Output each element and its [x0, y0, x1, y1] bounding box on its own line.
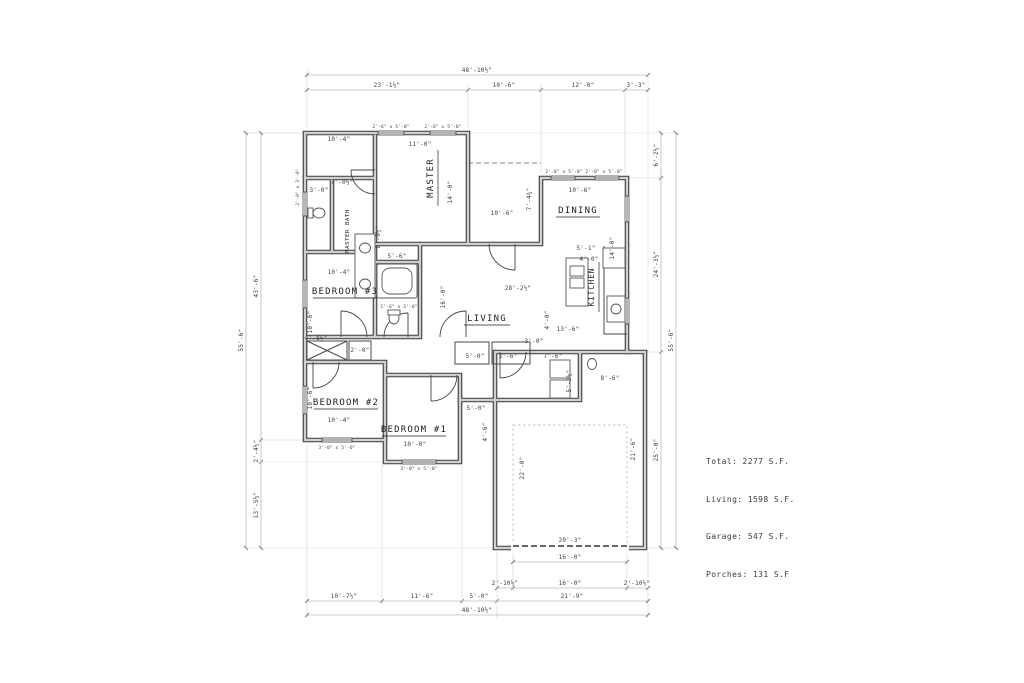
dim-closet1: 4'-8½": [305, 335, 328, 342]
dim-top-seg3: 12'-0": [572, 82, 595, 89]
dim-bed2-height: 10'-6": [307, 387, 314, 410]
dim-bed3-height: 10'-6": [307, 311, 314, 334]
dim-left-seg2: 2'-4½": [253, 440, 260, 463]
dim-bottom-overall: 48'-10½": [462, 607, 493, 614]
dim-patio2: 4'-6": [482, 422, 489, 441]
dim-left-overall: 55'-6": [238, 329, 245, 352]
dim-left-seg3: 13'-5½": [253, 492, 260, 519]
floor-plan-page: MASTER MASTER BATH DINING KITCHEN LIVING…: [0, 0, 1024, 683]
dim-garage-width: 20'-3": [559, 537, 582, 544]
dim-bottom-seg2: 11'-6": [411, 593, 434, 600]
dim-porch-height: 7'-4¾": [526, 188, 533, 211]
dim-hall1: 5'-0": [465, 353, 484, 360]
window-label-master1: 2'-6" x 5'-0": [372, 124, 409, 130]
window-label-dining: 2'-0" x 5'-0" 2'-0" x 5'-0": [545, 169, 622, 175]
extension-lines: [243, 70, 679, 618]
dim-master-closet: 10'-4": [328, 136, 351, 143]
dim-living-width: 28'-2½": [505, 285, 532, 292]
dim-dining-width: 10'-6": [569, 187, 592, 194]
room-label-bedroom1: BEDROOM #1: [381, 425, 447, 435]
dim-top-seg4: 3'-3": [626, 82, 645, 89]
window-label-bath2: 1'-6" x 3'-0": [380, 304, 417, 310]
summary-total: Total: 2277 S.F.: [706, 456, 795, 469]
window-label-bed2: 3'-0" x 5'-0": [318, 445, 355, 451]
room-label-bedroom3: BEDROOM #3: [312, 287, 378, 297]
room-label-master: MASTER: [426, 158, 436, 198]
dim-bottom-seg3: 5'-0": [469, 593, 488, 600]
garage-door: [511, 543, 629, 553]
area-summary: Total: 2277 S.F. Living: 1598 S.F. Garag…: [706, 431, 795, 594]
dim-utility2: 5'-2½": [566, 370, 573, 393]
dim-right-seg2: 24'-3½": [653, 251, 660, 278]
dim-bed3-width: 10'-4": [328, 269, 351, 276]
summary-garage: Garage: 547 S.F.: [706, 531, 795, 544]
dim-right-overall: 55'-6": [668, 329, 675, 352]
room-label-dining: DINING: [558, 206, 598, 216]
dim-kitchen4: 13'-6": [557, 326, 580, 333]
dim-bottom-seg1: 10'-7½": [331, 593, 358, 600]
dim-top-overall: 48'-10½": [462, 67, 493, 74]
window-label-wc: 2'-0" x 3'-0": [295, 168, 301, 205]
summary-porches: Porches: 131 S.F: [706, 569, 795, 582]
dim-patio1: 5'-0": [466, 405, 485, 412]
room-label-bedroom2: BEDROOM #2: [313, 398, 379, 408]
dim-hall2: 3'-6": [498, 353, 517, 360]
dim-bath-height: 8'-9½": [375, 226, 382, 249]
dim-master-height: 14'-0": [447, 181, 454, 204]
room-label-kitchen: KITCHEN: [587, 268, 596, 307]
dim-master-width: 11'-0": [409, 141, 432, 148]
dim-bottom-seg4: 21'-9": [561, 593, 584, 600]
dim-utility1: 3'-0": [524, 338, 543, 345]
dim-dining-height: 14'-0": [609, 237, 616, 260]
dim-garage-seg1: 2'-10½": [492, 580, 519, 587]
window-label-bed1: 3'-0" x 5'-0": [400, 466, 437, 472]
dim-bath2-width: 5'-6": [387, 253, 406, 260]
dim-living-height: 16'-0": [440, 286, 447, 309]
room-label-living: LIVING: [467, 314, 507, 324]
dim-top-seg2: 10'-6": [493, 82, 516, 89]
dim-top-seg1: 23'-1½": [374, 82, 401, 89]
dim-garage-seg3: 2'-10½": [624, 580, 651, 587]
window-label-master2: 2'-6" x 5'-0": [424, 124, 461, 130]
dim-garage-door: 16'-0": [559, 554, 582, 561]
dimension-lines: [246, 75, 676, 615]
room-label-master-bath: MASTER BATH: [345, 209, 351, 253]
dim-right-seg3: 25'-0": [653, 439, 660, 462]
dim-hall3: 7'-6": [543, 353, 562, 360]
dim-bed1-width: 10'-0": [404, 441, 427, 448]
dim-garage-height1: 22'-0": [519, 457, 526, 480]
dim-porch-width: 10'-6": [491, 210, 514, 217]
summary-living: Living: 1598 S.F.: [706, 494, 795, 507]
dim-kitchen3: 4'-0": [544, 310, 551, 329]
dim-bath-width: 7'-0½": [331, 179, 354, 186]
dim-garage-seg2: 16'-0": [559, 580, 582, 587]
dim-closet2: 2'-0": [350, 347, 369, 354]
dim-kitchen1: 5'-1": [576, 245, 595, 252]
dim-kitchen2: 4'-0": [579, 256, 598, 263]
dim-garage-height2: 21'-6": [630, 438, 637, 461]
dim-utility3: 8'-6": [600, 375, 619, 382]
floor-plan-drawing: MASTER MASTER BATH DINING KITCHEN LIVING…: [0, 0, 1024, 683]
dim-bed2-width: 10'-4": [328, 417, 351, 424]
dim-wc: 3'-0": [309, 187, 328, 194]
dim-right-seg1: 6'-2½": [653, 144, 660, 167]
dim-left-seg1: 43'-6": [253, 275, 260, 298]
